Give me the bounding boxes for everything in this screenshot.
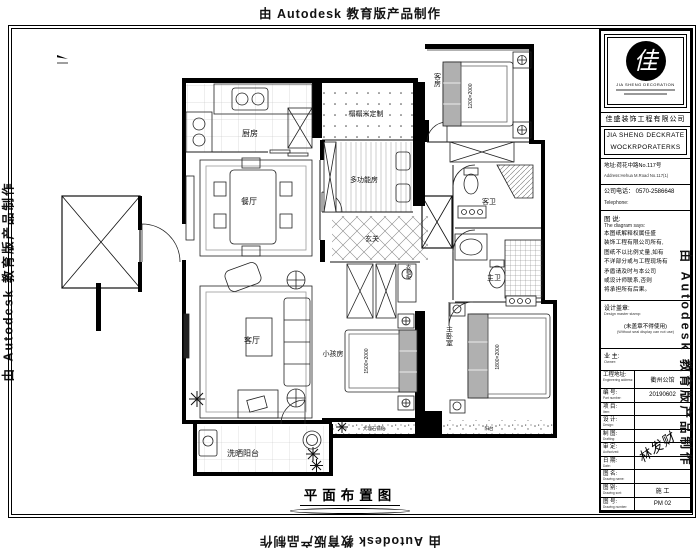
seal-label-cn: 设计盖章:	[604, 303, 687, 312]
watermark-right: 由 Autodesk 教育版产品制作	[678, 199, 697, 519]
seal-label-en: Design master stamp:	[604, 312, 687, 316]
room-label-entry: 玄关	[365, 234, 379, 243]
drawing-caption: 平面布置图	[270, 484, 430, 514]
room-label-living: 客厅	[244, 335, 260, 345]
room-label-kitchen: 厨房	[242, 128, 258, 138]
floor-plan-svg: 厨房 餐厅 客厅 榻榻米定制 多功能房 客房 客卫 主卫 玄关 衣帽柜 小孩房 …	[57, 36, 563, 480]
doors	[142, 122, 475, 424]
floor-plan: 厨房 餐厅 客厅 榻榻米定制 多功能房 客房 客卫 主卫 玄关 衣帽柜 小孩房 …	[57, 36, 563, 480]
company-logo-box: 佳 JIA SHENG DECORATION	[601, 31, 690, 113]
row-label-en: Part number:	[603, 396, 632, 400]
dim-guest-bed: 1200×2000	[468, 83, 474, 108]
dim-kids-bed: 1500×2000	[364, 348, 370, 373]
label-balcony-finish: 大理石铺贴	[363, 425, 386, 432]
logo-fineprint-bar	[624, 93, 667, 95]
row-label-en: Date:	[603, 464, 632, 468]
owner-label-cn: 业 主:	[604, 351, 687, 360]
row-label-en: Engineering address:	[603, 378, 632, 382]
row-label-en: Drafting:	[603, 437, 632, 441]
owner-label-en: Owner:	[604, 360, 687, 364]
company-name-en-box: JIA SHENG DECKRATE WOCKRPORATERKS	[601, 127, 690, 159]
room-label-guest-bath: 客卫	[482, 197, 496, 206]
company-seal-icon: 佳	[626, 41, 666, 81]
diagram-notes-label-en: The diagram says:	[604, 223, 687, 229]
room-label-master-bath: 主卫	[487, 273, 501, 282]
note-line: 不详部分或与工程现场有	[604, 258, 687, 267]
room-label-guest-room: 客房	[434, 72, 442, 88]
room-label-closet: 衣帽柜	[405, 264, 411, 281]
watermark-bottom: 由 Autodesk 教育版产品制作	[0, 533, 700, 552]
note-line: 将承担所有后果。	[604, 286, 687, 295]
note-line: 装饰工程有限公司所有,	[604, 239, 687, 248]
drawing-caption-text: 平面布置图	[300, 484, 401, 506]
logo-fineprint-bar	[616, 89, 675, 91]
company-name-en-2: WOCKRPORATERKS	[605, 142, 686, 154]
phone-en: Telephone:	[604, 198, 687, 209]
row-label-en: Drawing name:	[603, 477, 632, 481]
address-en: Address:Hehua M.Road No.117(1)	[604, 171, 687, 181]
row-label-en: Item:	[603, 410, 632, 414]
row-label-en: Drawing sort:	[603, 491, 632, 495]
seal-note-cn: (未盖章不得使用)	[604, 322, 687, 330]
room-label-dining: 餐厅	[241, 197, 257, 206]
company-name-en-1: JIA SHENG DECKRATE	[605, 130, 686, 142]
phone-cn: 公司电话： 0570-2586648	[604, 187, 687, 198]
company-address: 地址:荷花中路No.117号 Address:Hehua M.Road No.1…	[601, 159, 690, 185]
label-balcony: 阳台	[485, 425, 494, 432]
drawing-sheet: { "watermarks": { "top": "由 Autodesk 教育版…	[0, 0, 700, 560]
company-name-cn: 佳盛装饰工程有限公司	[601, 113, 690, 127]
north-compass-icon	[57, 52, 68, 67]
room-label-tatami: 榻榻米定制	[349, 109, 384, 118]
logo-subtext: JIA SHENG DECORATION	[608, 82, 683, 87]
note-line: 矛盾请及时与本公司	[604, 268, 687, 277]
diagram-notes-label-cn: 图 说:	[604, 213, 687, 223]
note-line: 图纸不以比例丈量,如有	[604, 249, 687, 258]
dim-master-bed: 1800×2000	[495, 344, 501, 369]
note-line: 本图纸解释权属佳盛	[604, 230, 687, 239]
caption-underline	[290, 508, 410, 514]
room-label-laundry: 洗晒阳台	[227, 448, 259, 458]
room-label-kids-room: 小孩房	[323, 349, 344, 358]
watermark-top: 由 Autodesk 教育版产品制作	[0, 3, 700, 22]
note-line: 或设计师联系,否则	[604, 277, 687, 286]
address-cn: 地址:荷花中路No.117号	[604, 161, 687, 171]
row-label-en: Design:	[603, 423, 632, 427]
room-label-multi: 多功能房	[350, 175, 378, 184]
seal-note-en: (Without seal display can not use)	[604, 330, 687, 334]
row-label-en: Drawing number:	[603, 505, 632, 509]
row-label-en: Authorized:	[603, 450, 632, 454]
room-label-master-bedroom: 主卧室	[446, 325, 454, 347]
